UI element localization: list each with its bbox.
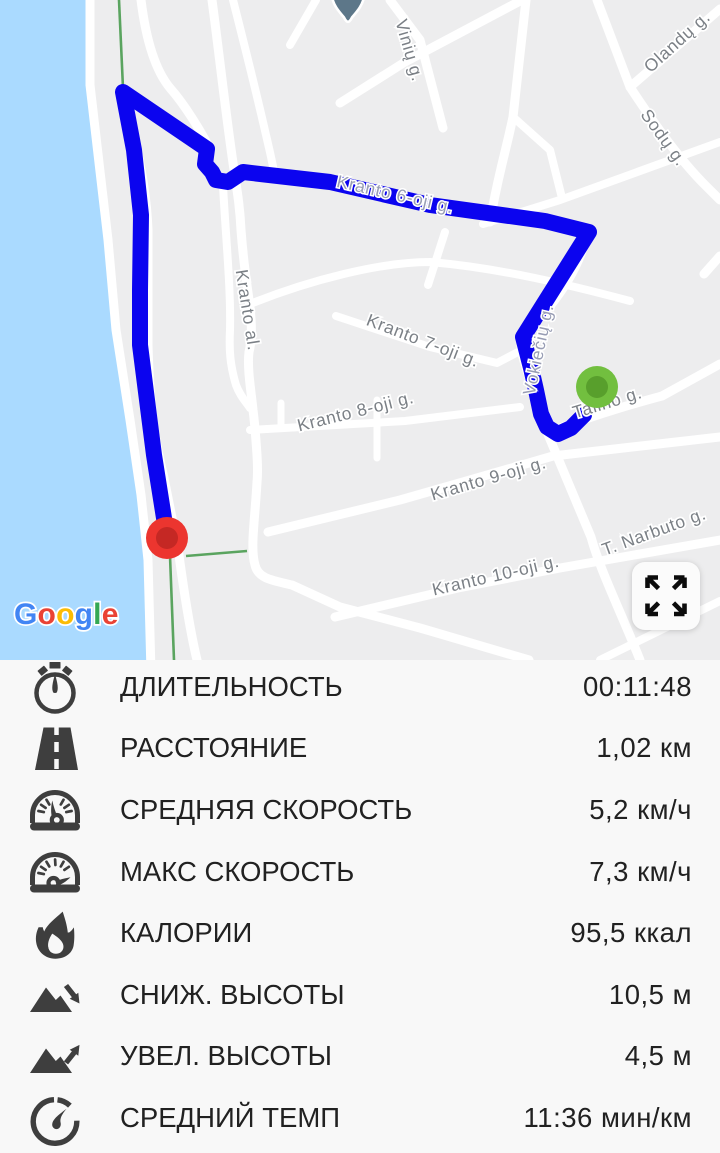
svg-text:Google: Google xyxy=(14,598,119,631)
